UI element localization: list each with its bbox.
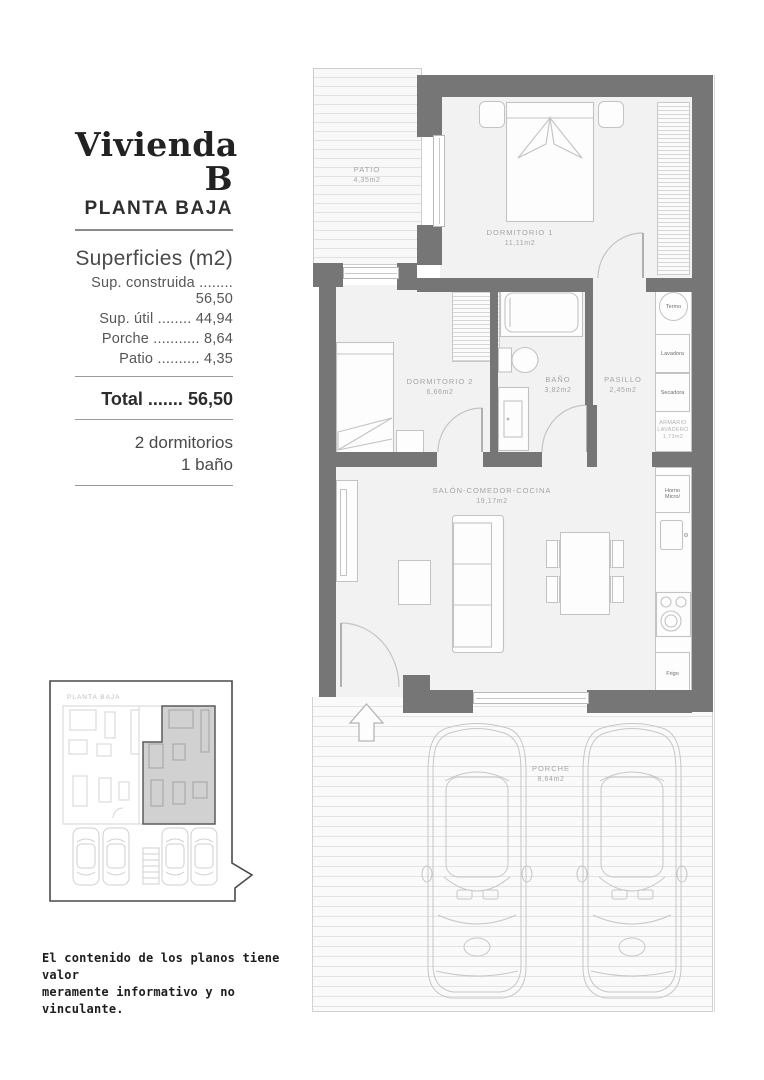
- wall: [417, 225, 442, 265]
- wall: [430, 690, 473, 713]
- room-label-salon: SALÓN-COMEDOR-COCINA 19,17m2: [407, 485, 577, 507]
- plot-boundary-line: [714, 75, 715, 1012]
- bathrooms-count: 1 baño: [75, 454, 233, 476]
- divider: [75, 229, 233, 231]
- wall: [490, 285, 498, 452]
- patio-area: PATIO 4,35m2: [313, 68, 422, 265]
- wardrobe: [657, 102, 690, 275]
- wall: [417, 278, 593, 292]
- room-label-dormitorio2: DORMITORIO 2 6,66m2: [370, 376, 510, 398]
- water-heater: Termo: [659, 292, 688, 321]
- total-row: Total ....... 56,50: [75, 389, 233, 410]
- porch-area: PORCHE 8,64m2: [312, 697, 713, 1012]
- wall: [397, 263, 417, 290]
- wall: [336, 452, 437, 467]
- page-subtitle: PLANTA BAJA: [75, 198, 233, 220]
- nightstand: [396, 430, 424, 453]
- room-label-armario: ARMARIO LAVADERO 1,73m2: [652, 420, 694, 441]
- dotted-leader: ..........: [157, 351, 199, 367]
- divider: [75, 376, 233, 377]
- door-dormitorio2: [433, 403, 488, 457]
- chair: [610, 576, 624, 603]
- total-value: 56,50: [188, 389, 233, 409]
- program-summary: 2 dormitorios 1 baño: [75, 432, 233, 476]
- dotted-leader: .......: [148, 389, 183, 409]
- chair: [546, 540, 560, 568]
- car-top-view: [421, 719, 533, 1004]
- toilet: [498, 346, 540, 374]
- chair: [610, 540, 624, 568]
- wall: [417, 97, 442, 137]
- window-patio-door: [433, 135, 445, 227]
- surface-value: 4,35: [204, 351, 233, 367]
- wall: [587, 405, 597, 467]
- cooktop: [656, 592, 691, 637]
- wall: [417, 75, 713, 97]
- surface-label: Patio: [119, 351, 153, 367]
- car-top-view: [576, 719, 688, 1004]
- surface-label: Sup. útil: [99, 311, 153, 327]
- surface-label: Porche: [102, 331, 149, 347]
- single-bed: [336, 342, 394, 454]
- surface-row: Sup. útil ........ 44,94: [75, 311, 233, 327]
- window-dormitorio2: [343, 267, 399, 279]
- tv-unit: [336, 480, 358, 582]
- disclaimer: El contenido de los planos tiene valor m…: [42, 950, 322, 1018]
- dotted-leader: ........: [199, 275, 233, 291]
- sofa: [452, 515, 504, 653]
- surface-value: 56,50: [196, 291, 233, 307]
- wall: [483, 452, 542, 467]
- nightstand: [479, 101, 505, 128]
- tv: [340, 489, 347, 576]
- dotted-leader: ........: [158, 311, 192, 327]
- surface-value: 8,64: [204, 331, 233, 347]
- surface-label: Sup. construida: [91, 275, 195, 291]
- dotted-leader: ...........: [153, 331, 200, 347]
- page-title: Vivienda B: [75, 128, 233, 196]
- nightstand: [598, 101, 624, 128]
- room-label-pasillo: PASILLO 2,45m2: [584, 374, 662, 396]
- room-label-patio: PATIO 4,35m2: [318, 164, 416, 186]
- divider: [75, 419, 233, 420]
- bathtub: [500, 288, 583, 337]
- surface-row: Porche ........... 8,64: [75, 331, 233, 347]
- wall: [587, 690, 692, 713]
- door-bano: [538, 401, 592, 457]
- floor-plan: PORCHE 8,64m2: [310, 60, 715, 1015]
- oven-microwave: Horno Micro/: [655, 475, 690, 513]
- surface-row: Patio .......... 4,35: [75, 351, 233, 367]
- surface-row: Sup. construida ........ 56,50: [75, 275, 233, 307]
- surfaces-heading: Superficies (m2): [75, 247, 233, 271]
- wall: [319, 285, 336, 697]
- divider: [75, 485, 233, 486]
- wall: [403, 675, 430, 713]
- door-entrance: [336, 618, 404, 688]
- entrance-arrow-icon: [349, 703, 384, 742]
- disclaimer-line: El contenido de los planos tiene valor: [42, 950, 322, 984]
- wall: [646, 278, 692, 292]
- double-bed: [506, 102, 594, 222]
- coffee-table: [398, 560, 431, 605]
- door-dormitorio1: [593, 228, 648, 283]
- info-panel: Vivienda B PLANTA BAJA Superficies (m2) …: [75, 128, 233, 486]
- disclaimer-line: meramente informativo y no vinculante.: [42, 984, 322, 1018]
- total-label: Total: [101, 389, 143, 409]
- chair: [546, 576, 560, 603]
- surface-value: 44,94: [196, 311, 233, 327]
- keyplan-title: PLANTA BAJA: [67, 694, 121, 701]
- bedrooms-count: 2 dormitorios: [75, 432, 233, 454]
- dining-table: [560, 532, 610, 615]
- floorplan-sheet: Vivienda B PLANTA BAJA Superficies (m2) …: [0, 0, 764, 1080]
- room-label-dormitorio1: DORMITORIO 1 11,11m2: [450, 227, 590, 249]
- washing-machine: Lavadora: [655, 334, 690, 373]
- window-salon-porch: [473, 692, 589, 704]
- wall: [313, 263, 343, 287]
- key-plan: PLANTA BAJA: [45, 678, 257, 906]
- wall: [652, 452, 692, 467]
- kitchen-sink: [660, 520, 688, 550]
- wall: [692, 75, 713, 712]
